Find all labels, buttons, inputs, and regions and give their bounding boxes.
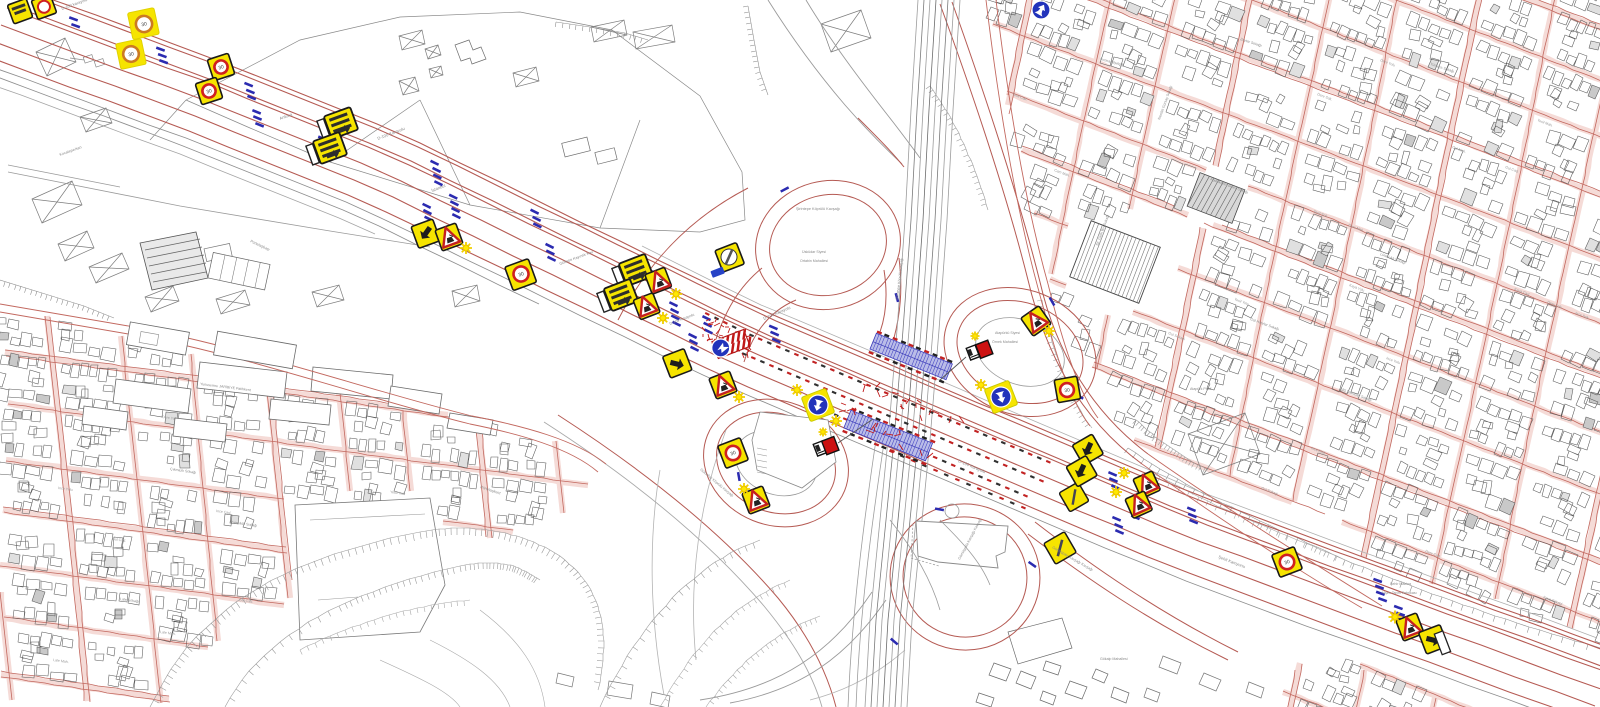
svg-text:Vişen Tarım Fabrikası: Vişen Tarım Fabrikası bbox=[1382, 591, 1417, 595]
svg-text:Şirintepe Köprülü Kavşağı: Şirintepe Köprülü Kavşağı bbox=[796, 207, 840, 211]
svg-text:D-100 Karayolu: D-100 Karayolu bbox=[570, 516, 600, 521]
svg-text:Üsküdar Siyesi: Üsküdar Siyesi bbox=[802, 250, 826, 254]
svg-text:Örnek Mahallesi: Örnek Mahallesi bbox=[992, 340, 1018, 344]
svg-text:Şehir Makina: Şehir Makina bbox=[1390, 582, 1411, 586]
svg-text:Ortabin Mahallesi: Ortabin Mahallesi bbox=[800, 259, 828, 263]
svg-text:Atapürkü Siyesi: Atapürkü Siyesi bbox=[995, 331, 1020, 335]
svg-text:Gökalp Mahallesi: Gökalp Mahallesi bbox=[1100, 657, 1128, 661]
svg-text:Atapürk Pasif: Atapürk Pasif bbox=[1190, 387, 1211, 391]
